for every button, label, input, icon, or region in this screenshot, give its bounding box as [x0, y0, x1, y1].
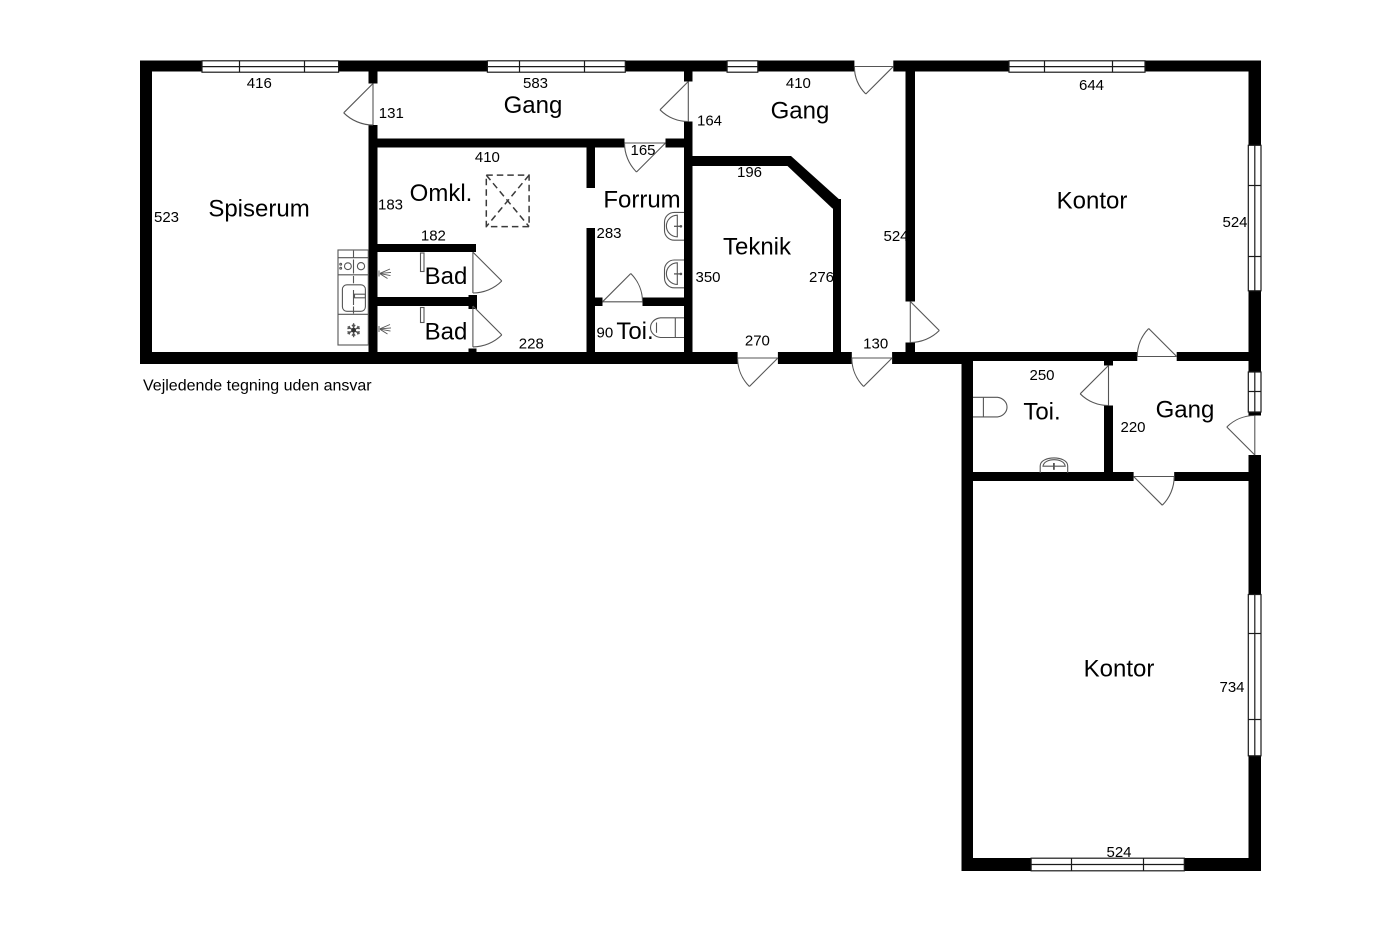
svg-text:Gang: Gang	[1156, 397, 1215, 424]
svg-text:524: 524	[883, 228, 908, 245]
svg-text:250: 250	[1029, 367, 1054, 384]
svg-text:183: 183	[378, 197, 403, 214]
svg-text:Toi.: Toi.	[616, 318, 653, 345]
svg-text:524: 524	[1222, 214, 1247, 231]
svg-text:Omkl.: Omkl.	[410, 180, 473, 207]
svg-text:270: 270	[745, 333, 770, 350]
svg-text:410: 410	[475, 149, 500, 166]
svg-text:Vejledende tegning uden ansvar: Vejledende tegning uden ansvar	[143, 378, 372, 395]
svg-text:165: 165	[630, 142, 655, 159]
svg-text:416: 416	[247, 75, 272, 92]
svg-text:Kontor: Kontor	[1057, 188, 1128, 215]
svg-text:131: 131	[379, 105, 404, 122]
svg-text:410: 410	[786, 75, 811, 92]
svg-text:228: 228	[519, 336, 544, 353]
svg-text:734: 734	[1219, 679, 1244, 696]
svg-text:583: 583	[523, 75, 548, 92]
svg-text:Gang: Gang	[504, 92, 563, 119]
svg-text:196: 196	[737, 164, 762, 181]
svg-text:Teknik: Teknik	[723, 234, 792, 261]
svg-text:90: 90	[597, 325, 614, 342]
svg-text:Kontor: Kontor	[1084, 656, 1155, 683]
svg-text:Bad: Bad	[425, 263, 468, 290]
svg-text:182: 182	[421, 228, 446, 245]
svg-text:Gang: Gang	[771, 98, 830, 125]
svg-text:276: 276	[809, 269, 834, 286]
svg-text:644: 644	[1079, 77, 1104, 94]
svg-text:Bad: Bad	[425, 319, 468, 346]
svg-text:Spiserum: Spiserum	[208, 196, 309, 223]
svg-text:283: 283	[596, 225, 621, 242]
svg-text:164: 164	[697, 113, 722, 130]
svg-text:220: 220	[1120, 419, 1145, 436]
svg-text:524: 524	[1106, 844, 1131, 861]
svg-text:Forrum: Forrum	[603, 187, 680, 214]
svg-text:130: 130	[863, 336, 888, 353]
svg-text:Toi.: Toi.	[1023, 399, 1060, 426]
svg-text:350: 350	[695, 269, 720, 286]
svg-text:523: 523	[154, 209, 179, 226]
